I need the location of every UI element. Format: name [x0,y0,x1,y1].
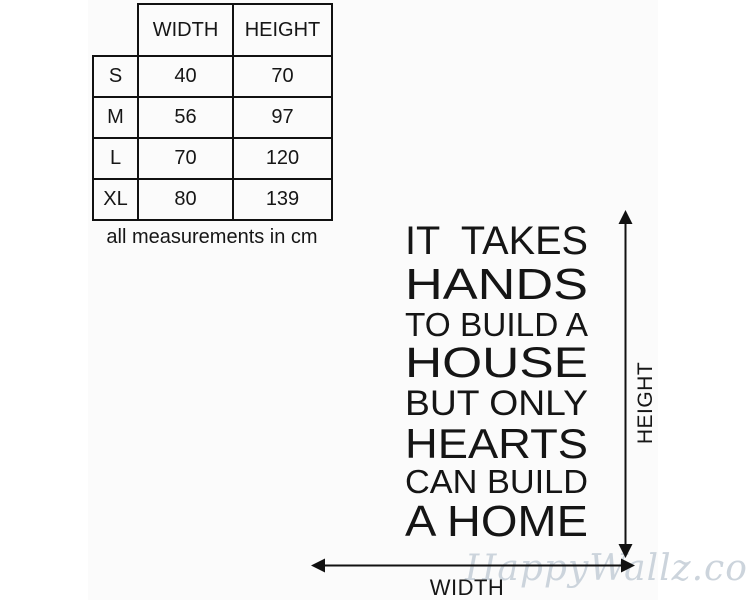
height-value: 97 [233,97,332,138]
quote-line-text: IT TAKES [405,221,588,262]
product-image-canvas: WIDTH HEIGHT S 40 70 M 56 97 L 70 120 XL… [0,0,750,600]
quote-line-text: TO BUILD A [405,308,588,342]
width-value: 70 [138,138,233,179]
height-value: 120 [233,138,332,179]
table-row-m: M 56 97 [93,97,332,138]
quote-line: IT TAKES [405,221,588,262]
quote-line: BUT ONLY [405,386,588,422]
table-row-s: S 40 70 [93,56,332,97]
height-dimension-label: HEIGHT [634,358,658,448]
quote-line: HEARTS [405,422,588,465]
height-value: 139 [233,179,332,220]
width-value: 40 [138,56,233,97]
size-table-header-height: HEIGHT [233,4,332,56]
quote-line: HANDS [405,262,588,307]
size-label: XL [93,179,138,220]
quote-line-text: BUT ONLY [405,386,588,422]
quote-line-text: A HOME [405,499,588,544]
quote-line: HOUSE [405,341,588,385]
quote-line: TO BUILD A [405,308,588,342]
measurements-caption: all measurements in cm [92,226,332,249]
quote-line-text: CAN BUILD [405,465,588,499]
width-value: 80 [138,179,233,220]
decal-quote: IT TAKES HANDS TO BUILD A HOUSE BUT ONLY… [405,221,588,544]
size-table-header-width: WIDTH [138,4,233,56]
quote-line-text: HEARTS [405,422,588,465]
width-dimension-arrow-icon [311,558,635,573]
table-row-xl: XL 80 139 [93,179,332,220]
height-value: 70 [233,56,332,97]
quote-line-text: HOUSE [405,341,588,385]
height-dimension-arrow-icon [618,210,633,558]
size-table-block: WIDTH HEIGHT S 40 70 M 56 97 L 70 120 XL… [92,3,333,249]
table-row-l: L 70 120 [93,138,332,179]
size-table-header-row: WIDTH HEIGHT [93,4,332,56]
size-table-blank-cell [93,4,138,56]
size-label: S [93,56,138,97]
width-value: 56 [138,97,233,138]
size-label: L [93,138,138,179]
quote-line: CAN BUILD [405,465,588,499]
width-dimension-label: WIDTH [407,575,527,600]
size-label: M [93,97,138,138]
size-table: WIDTH HEIGHT S 40 70 M 56 97 L 70 120 XL… [92,3,333,221]
quote-line: A HOME [405,499,588,544]
quote-line-text: HANDS [405,262,588,307]
